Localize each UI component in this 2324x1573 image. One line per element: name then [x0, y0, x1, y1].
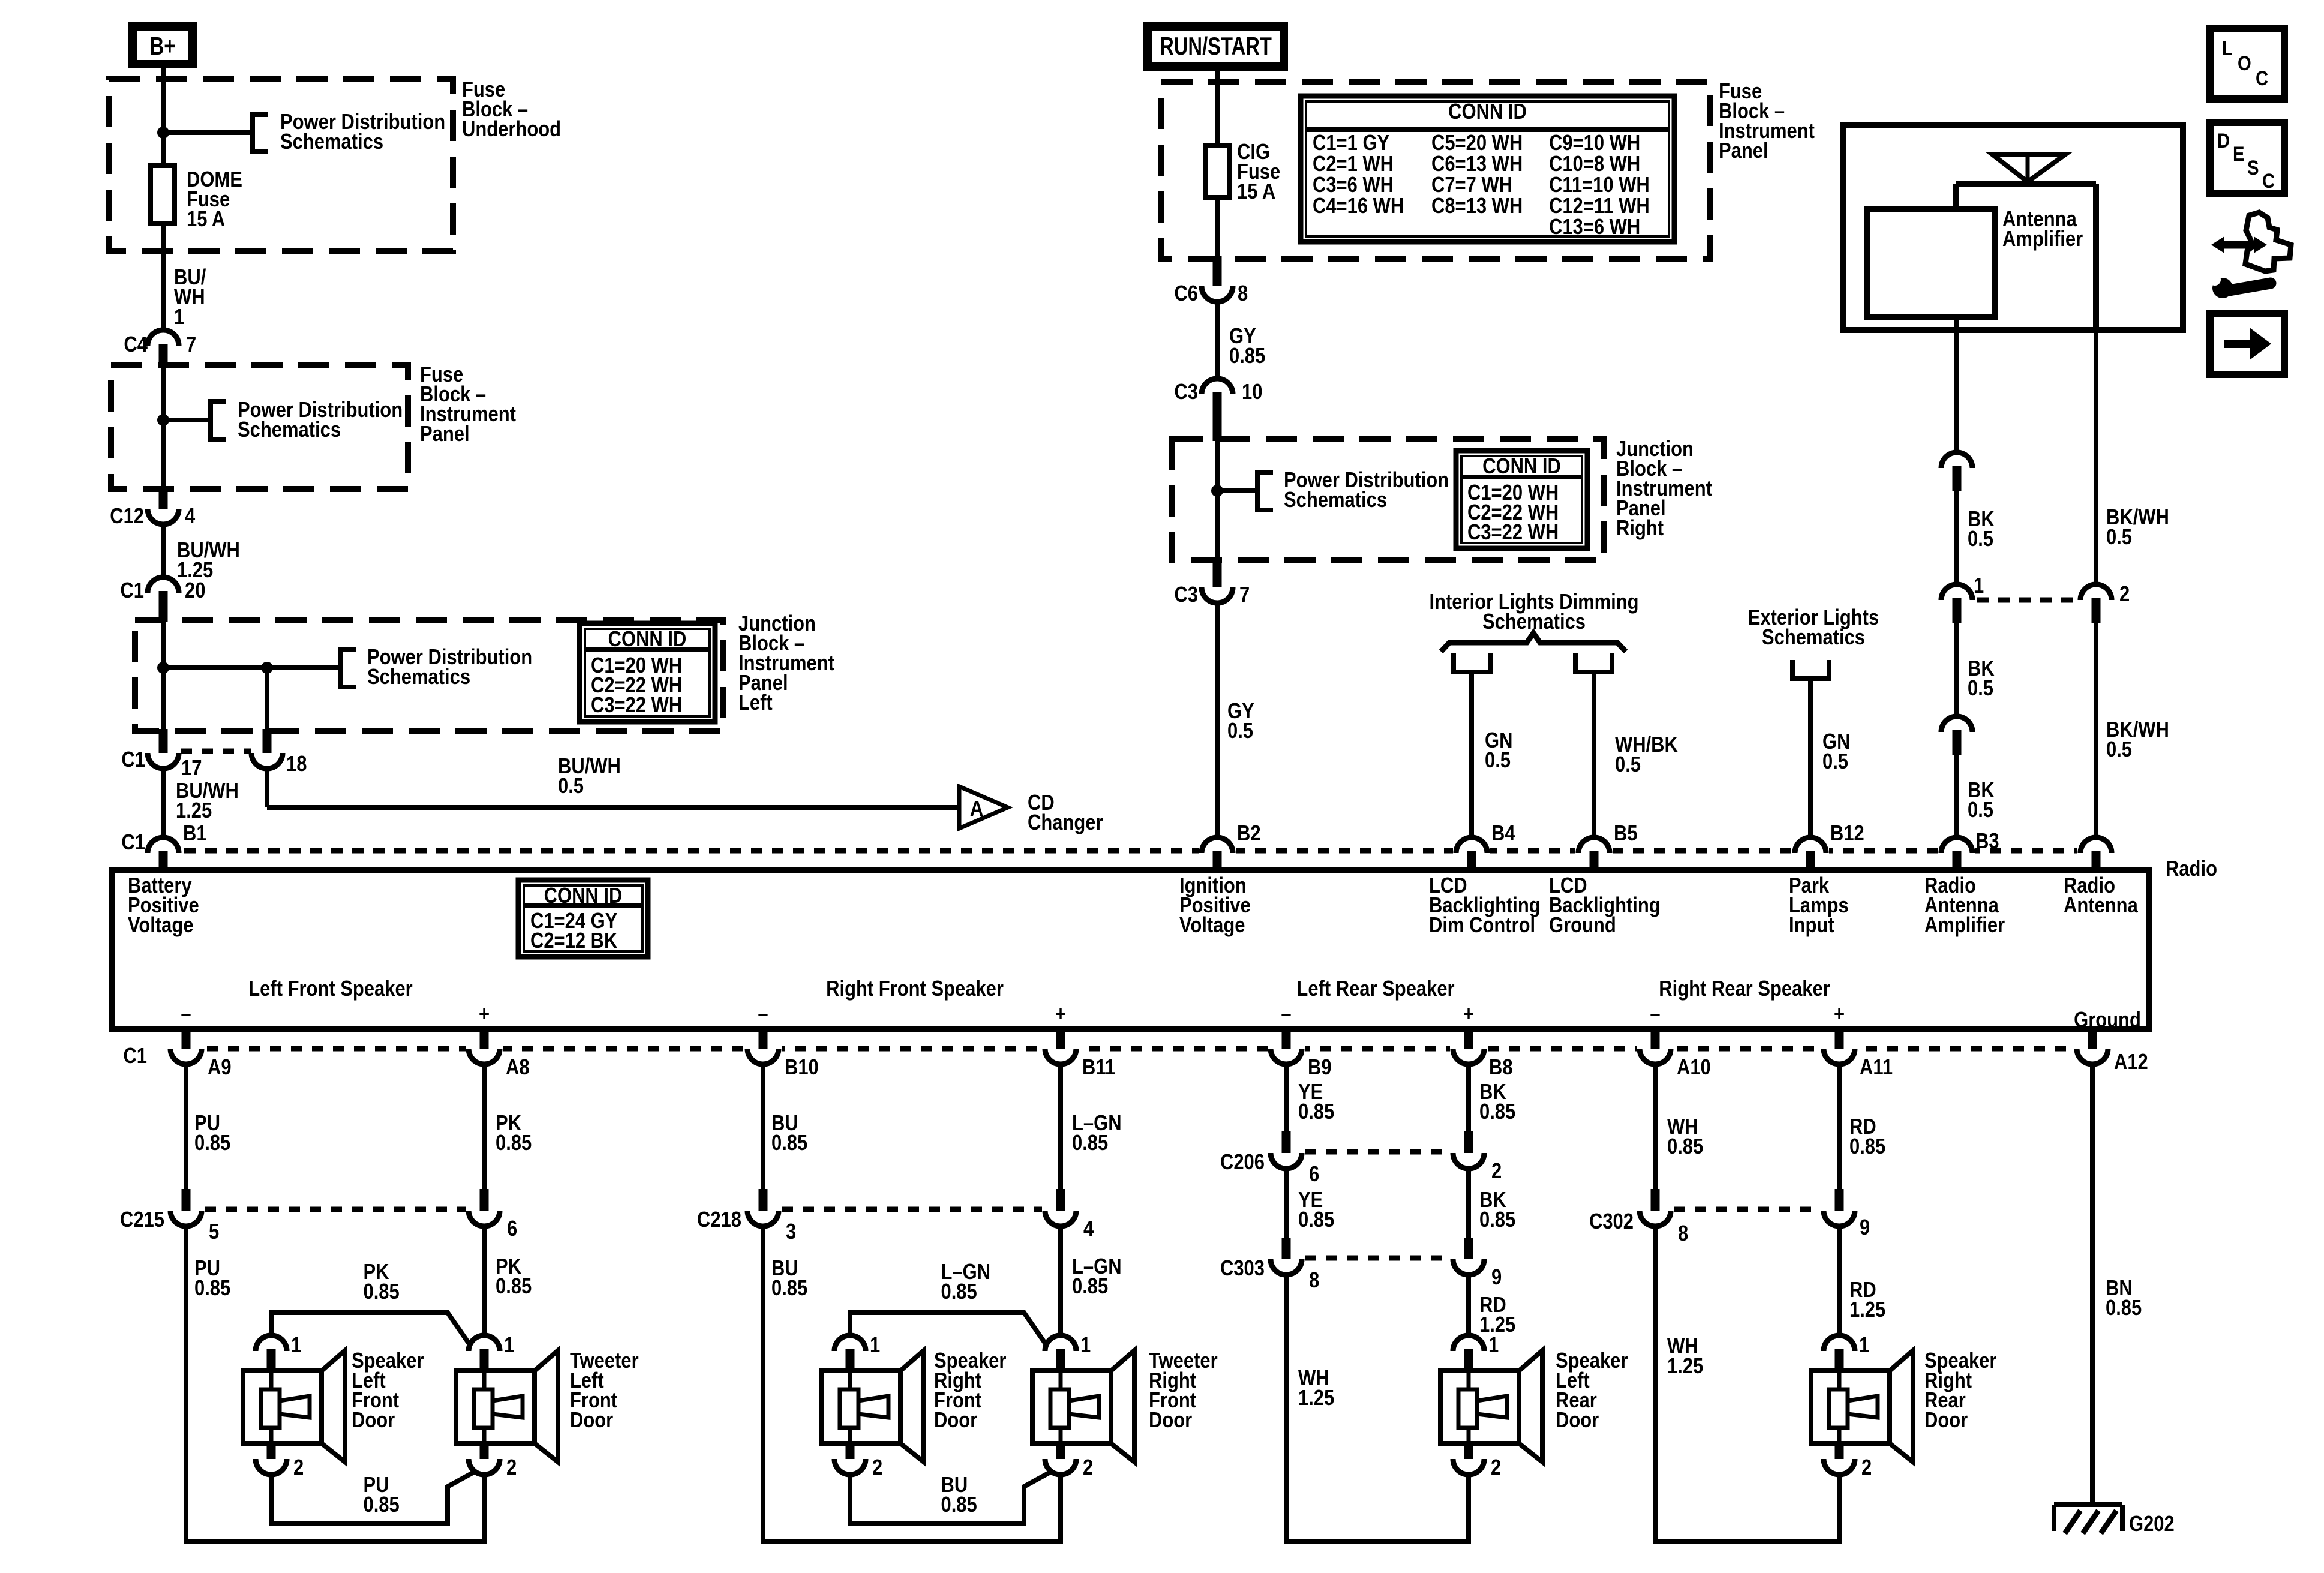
svg-text:C1: C1 — [121, 831, 145, 855]
svg-text:Radio: Radio — [2166, 857, 2217, 881]
svg-text:Door: Door — [352, 1409, 395, 1433]
svg-text:CONN ID: CONN ID — [608, 628, 687, 652]
svg-text:1.25: 1.25 — [1667, 1355, 1703, 1379]
svg-text:0.5: 0.5 — [2106, 738, 2132, 762]
svg-text:1.25: 1.25 — [1849, 1298, 1885, 1322]
svg-text:Ground: Ground — [2074, 1008, 2141, 1032]
svg-text:Left: Left — [738, 691, 773, 715]
svg-text:0.85: 0.85 — [194, 1277, 230, 1301]
svg-text:C303: C303 — [1220, 1257, 1265, 1281]
svg-text:8: 8 — [1678, 1222, 1688, 1246]
svg-text:C10=8 WH: C10=8 WH — [1549, 152, 1640, 176]
svg-text:Schematics: Schematics — [1284, 488, 1387, 512]
svg-text:2: 2 — [506, 1456, 517, 1480]
svg-text:+: + — [1463, 1002, 1474, 1026]
svg-text:0.85: 0.85 — [1298, 1208, 1334, 1232]
svg-text:0.85: 0.85 — [194, 1131, 230, 1155]
svg-text:D: D — [2217, 129, 2230, 152]
svg-text:0.5: 0.5 — [1227, 719, 1253, 743]
svg-text:B10: B10 — [785, 1056, 819, 1080]
svg-text:Right Front Speaker: Right Front Speaker — [826, 977, 1004, 1001]
svg-text:2: 2 — [1861, 1456, 1872, 1480]
svg-text:G202: G202 — [2129, 1512, 2175, 1536]
svg-text:B5: B5 — [1614, 822, 1638, 846]
svg-text:C6=13 WH: C6=13 WH — [1431, 152, 1523, 176]
svg-text:B4: B4 — [1491, 822, 1515, 846]
svg-text:Door: Door — [1556, 1409, 1599, 1433]
svg-text:CONN ID: CONN ID — [544, 884, 623, 908]
svg-text:C1: C1 — [123, 1044, 147, 1068]
svg-text:Door: Door — [570, 1409, 613, 1433]
svg-text:–: – — [1281, 1002, 1291, 1026]
svg-text:CONN ID: CONN ID — [1482, 455, 1561, 479]
svg-text:Schematics: Schematics — [367, 665, 470, 689]
svg-text:0.85: 0.85 — [364, 1280, 400, 1304]
svg-text:0.85: 0.85 — [1667, 1135, 1703, 1159]
svg-text:A11: A11 — [1860, 1056, 1893, 1080]
svg-text:C3=22 WH: C3=22 WH — [591, 694, 682, 718]
svg-text:C3: C3 — [1174, 380, 1198, 404]
svg-text:0.85: 0.85 — [1229, 344, 1265, 368]
svg-text:Left Rear Speaker: Left Rear Speaker — [1296, 977, 1454, 1001]
svg-text:10: 10 — [1242, 380, 1262, 404]
svg-text:L: L — [2222, 37, 2233, 60]
svg-text:17: 17 — [181, 757, 202, 781]
svg-text:1: 1 — [870, 1334, 880, 1358]
svg-text:0.85: 0.85 — [364, 1493, 400, 1517]
svg-text:1.25: 1.25 — [176, 799, 212, 823]
svg-text:0.85: 0.85 — [496, 1275, 532, 1299]
svg-text:1: 1 — [1080, 1334, 1091, 1358]
svg-text:Panel: Panel — [1719, 139, 1768, 163]
svg-text:0.5: 0.5 — [1968, 798, 1993, 822]
svg-text:1: 1 — [1488, 1334, 1499, 1358]
svg-text:0.5: 0.5 — [1968, 677, 1993, 701]
svg-text:0.85: 0.85 — [771, 1277, 807, 1301]
svg-text:A12: A12 — [2114, 1050, 2148, 1074]
svg-text:5: 5 — [209, 1220, 219, 1244]
svg-text:Changer: Changer — [1028, 811, 1103, 835]
svg-text:9: 9 — [1491, 1266, 1502, 1290]
svg-text:Schematics: Schematics — [238, 418, 341, 442]
svg-text:20: 20 — [185, 579, 205, 603]
svg-text:0.85: 0.85 — [2106, 1296, 2142, 1320]
svg-text:S: S — [2247, 156, 2259, 179]
svg-text:C8=13 WH: C8=13 WH — [1431, 194, 1523, 218]
svg-text:A9: A9 — [208, 1056, 232, 1080]
svg-text:C2=1 WH: C2=1 WH — [1313, 152, 1394, 176]
svg-text:Amplifier: Amplifier — [1924, 914, 2005, 938]
svg-text:C6: C6 — [1174, 282, 1198, 306]
svg-text:15 A: 15 A — [1237, 180, 1275, 204]
svg-text:15 A: 15 A — [187, 208, 225, 232]
svg-text:0.85: 0.85 — [941, 1493, 977, 1517]
svg-text:B11: B11 — [1082, 1056, 1115, 1080]
svg-text:1: 1 — [504, 1334, 514, 1358]
svg-text:0.5: 0.5 — [1968, 527, 1993, 551]
svg-text:Door: Door — [1149, 1409, 1192, 1433]
svg-text:C: C — [2262, 169, 2275, 193]
svg-text:0.5: 0.5 — [1615, 753, 1641, 777]
svg-text:B2: B2 — [1237, 822, 1261, 846]
svg-text:C2=12 BK: C2=12 BK — [530, 929, 617, 953]
svg-text:–: – — [1650, 1002, 1660, 1026]
svg-text:C4: C4 — [124, 333, 148, 357]
svg-text:C3: C3 — [1174, 583, 1198, 607]
svg-text:1: 1 — [174, 305, 184, 329]
svg-text:B12: B12 — [1830, 822, 1864, 846]
svg-text:Voltage: Voltage — [128, 914, 193, 938]
svg-text:C7=7 WH: C7=7 WH — [1431, 173, 1512, 197]
svg-text:A10: A10 — [1677, 1056, 1711, 1080]
svg-text:2: 2 — [293, 1456, 304, 1480]
svg-text:C1: C1 — [120, 579, 144, 603]
svg-text:C218: C218 — [697, 1208, 741, 1232]
svg-text:C: C — [2256, 67, 2268, 90]
svg-text:B3: B3 — [1975, 830, 1999, 854]
svg-text:Panel: Panel — [420, 422, 470, 446]
svg-text:Underhood: Underhood — [462, 118, 561, 142]
svg-text:0.85: 0.85 — [1072, 1131, 1108, 1155]
svg-text:O: O — [2238, 52, 2251, 75]
svg-text:Schematics: Schematics — [280, 130, 383, 154]
svg-text:C9=10 WH: C9=10 WH — [1549, 131, 1640, 155]
svg-text:Door: Door — [934, 1409, 977, 1433]
svg-text:C4=16 WH: C4=16 WH — [1313, 194, 1404, 218]
svg-text:Right Rear Speaker: Right Rear Speaker — [1659, 977, 1830, 1001]
svg-text:2: 2 — [2119, 583, 2130, 607]
svg-text:0.5: 0.5 — [558, 775, 584, 798]
svg-text:0.85: 0.85 — [771, 1131, 807, 1155]
svg-text:0.5: 0.5 — [1485, 749, 1511, 773]
svg-text:3: 3 — [786, 1220, 796, 1244]
svg-text:1.25: 1.25 — [1298, 1386, 1334, 1410]
svg-text:Left Front Speaker: Left Front Speaker — [248, 977, 412, 1001]
svg-text:C206: C206 — [1220, 1151, 1265, 1175]
svg-text:+: + — [479, 1002, 490, 1026]
svg-text:B9: B9 — [1308, 1056, 1332, 1080]
svg-text:B8: B8 — [1489, 1056, 1513, 1080]
svg-text:8: 8 — [1238, 282, 1248, 306]
svg-text:+: + — [1055, 1002, 1066, 1026]
svg-text:Right: Right — [1616, 517, 1664, 541]
svg-text:Amplifier: Amplifier — [2002, 227, 2083, 251]
svg-text:1: 1 — [1859, 1334, 1869, 1358]
svg-text:C302: C302 — [1589, 1210, 1634, 1234]
svg-text:Antenna: Antenna — [2064, 894, 2138, 918]
svg-text:E: E — [2233, 142, 2244, 166]
svg-text:Voltage: Voltage — [1179, 914, 1245, 938]
svg-text:7: 7 — [1239, 583, 1250, 607]
svg-text:6: 6 — [1309, 1163, 1319, 1187]
svg-text:0.85: 0.85 — [496, 1131, 532, 1155]
svg-text:Ground: Ground — [1549, 914, 1616, 938]
svg-text:C13=6 WH: C13=6 WH — [1549, 215, 1640, 239]
svg-text:B+: B+ — [150, 32, 176, 60]
svg-text:C12: C12 — [110, 505, 144, 529]
svg-text:C11=10 WH: C11=10 WH — [1549, 173, 1650, 197]
svg-text:0.85: 0.85 — [1479, 1208, 1515, 1232]
svg-text:2: 2 — [1083, 1456, 1093, 1480]
svg-text:0.85: 0.85 — [941, 1280, 977, 1304]
svg-text:A: A — [970, 797, 983, 821]
svg-text:B1: B1 — [183, 822, 207, 846]
svg-text:2: 2 — [1491, 1456, 1501, 1480]
svg-text:4: 4 — [185, 505, 196, 529]
svg-text:–: – — [758, 1002, 768, 1026]
svg-text:Door: Door — [1924, 1409, 1968, 1433]
svg-text:Input: Input — [1789, 914, 1834, 938]
svg-text:0.85: 0.85 — [1479, 1100, 1515, 1124]
svg-text:8: 8 — [1309, 1269, 1319, 1293]
svg-text:Dim Control: Dim Control — [1429, 914, 1535, 938]
svg-text:6: 6 — [507, 1217, 517, 1241]
svg-text:1: 1 — [291, 1334, 301, 1358]
svg-text:C3=6 WH: C3=6 WH — [1313, 173, 1394, 197]
svg-text:A8: A8 — [506, 1056, 530, 1080]
svg-text:0.85: 0.85 — [1072, 1275, 1108, 1299]
svg-text:CONN ID: CONN ID — [1448, 100, 1527, 124]
svg-text:C3=22 WH: C3=22 WH — [1467, 521, 1559, 545]
svg-text:18: 18 — [286, 752, 307, 776]
svg-text:0.85: 0.85 — [1849, 1135, 1885, 1159]
svg-text:C215: C215 — [120, 1208, 164, 1232]
svg-text:Schematics: Schematics — [1762, 626, 1865, 650]
svg-text:1: 1 — [1974, 574, 1984, 598]
svg-text:0.85: 0.85 — [1298, 1100, 1334, 1124]
svg-text:9: 9 — [1860, 1216, 1870, 1240]
svg-text:–: – — [181, 1002, 191, 1026]
svg-text:0.5: 0.5 — [1822, 750, 1848, 774]
svg-text:C5=20 WH: C5=20 WH — [1431, 131, 1523, 155]
svg-text:7: 7 — [186, 333, 196, 357]
svg-text:RUN/START: RUN/START — [1160, 32, 1272, 60]
svg-text:4: 4 — [1083, 1217, 1094, 1241]
svg-text:C1=1 GY: C1=1 GY — [1313, 131, 1389, 155]
svg-text:C12=11 WH: C12=11 WH — [1549, 194, 1650, 218]
svg-text:2: 2 — [1491, 1160, 1502, 1184]
svg-text:0.5: 0.5 — [2106, 526, 2132, 550]
svg-text:2: 2 — [872, 1456, 882, 1480]
svg-text:+: + — [1834, 1002, 1845, 1026]
svg-text:C1: C1 — [121, 748, 145, 772]
